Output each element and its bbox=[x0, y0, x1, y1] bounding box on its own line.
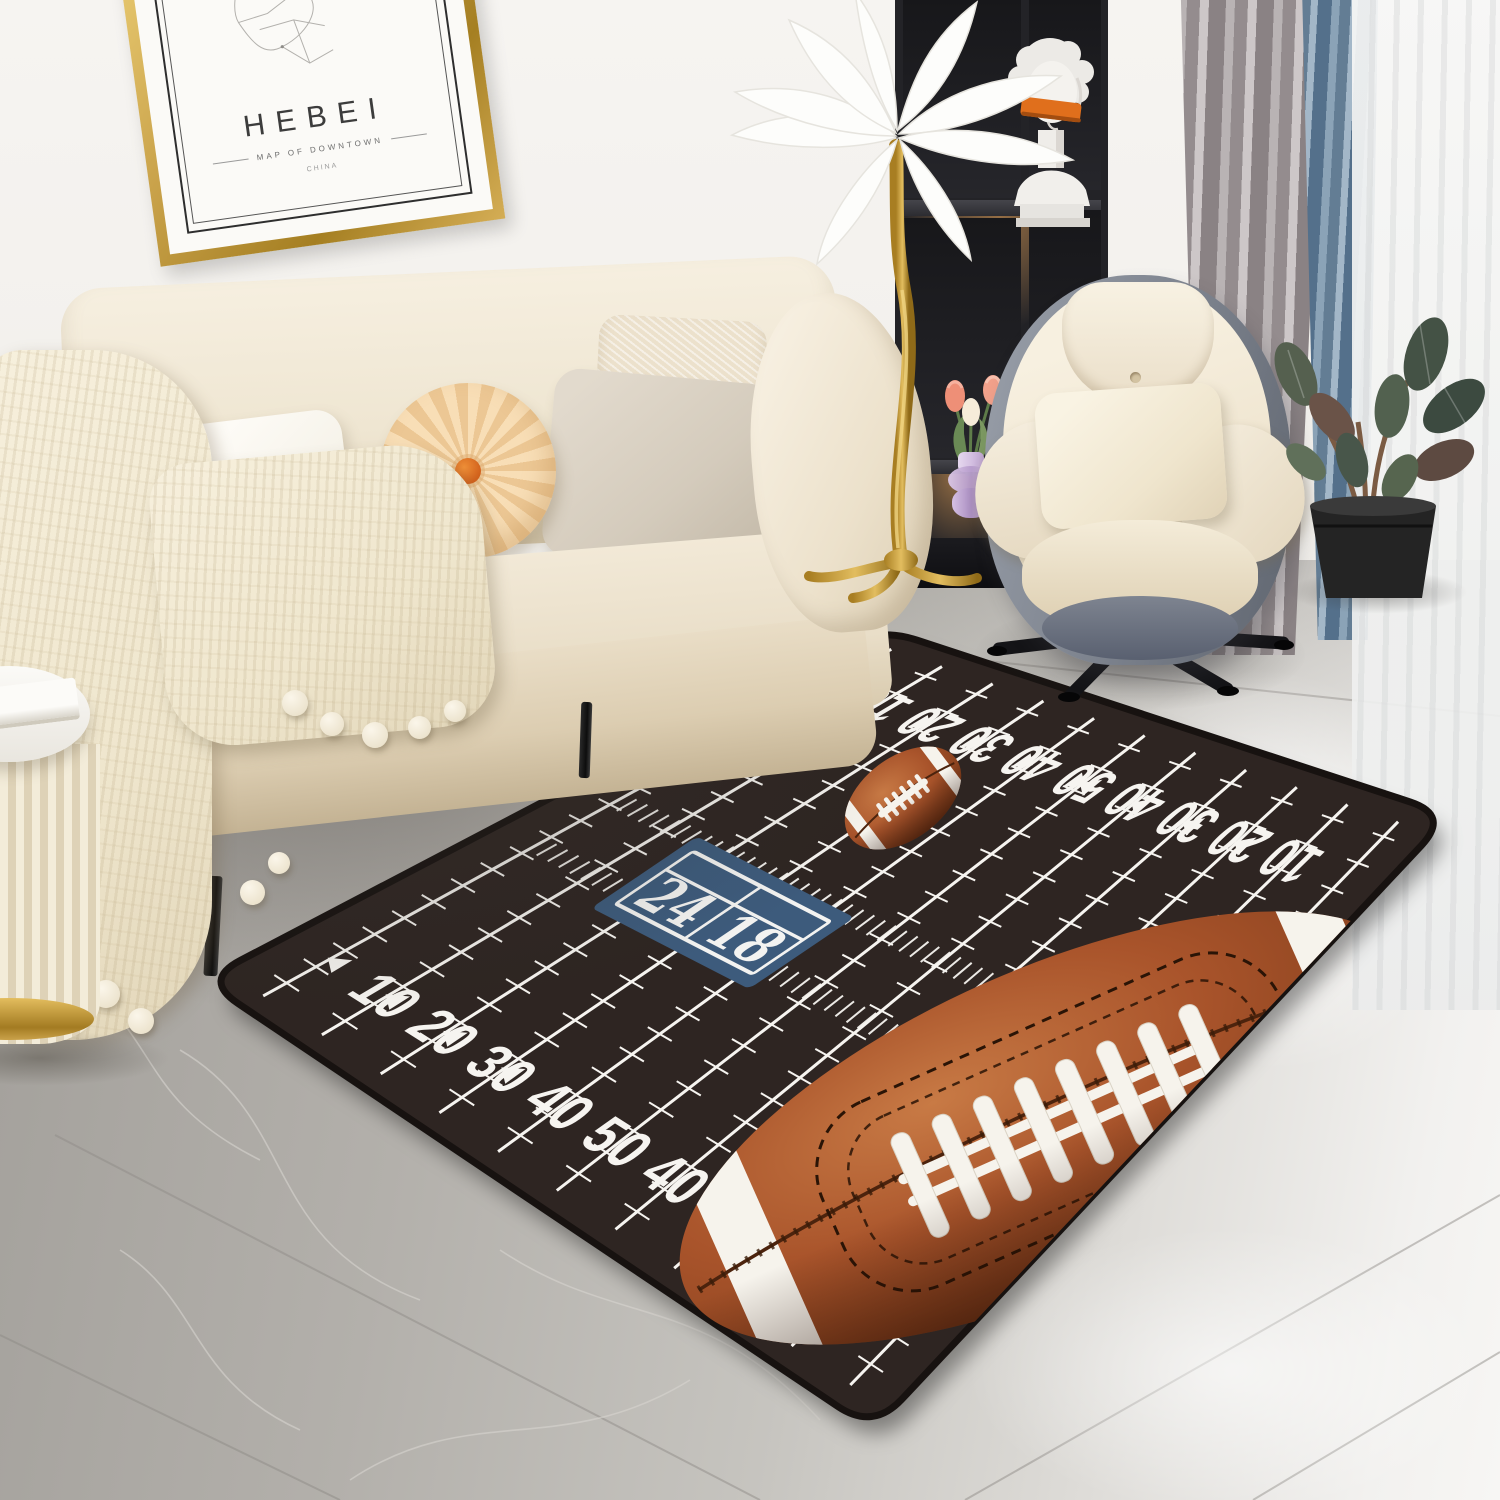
pompom bbox=[282, 690, 308, 716]
pompom bbox=[128, 1008, 154, 1034]
pompom bbox=[362, 722, 388, 748]
frame-matte: HEBEI MAP OF DOWNTOWN CHINA bbox=[131, 0, 493, 254]
rubber-plant bbox=[1240, 310, 1500, 610]
feather-floor-lamp bbox=[705, 0, 1105, 628]
pompom bbox=[444, 700, 466, 722]
pompom bbox=[408, 716, 431, 739]
pompom bbox=[240, 880, 265, 905]
pompom bbox=[320, 712, 344, 736]
pompom bbox=[268, 852, 290, 874]
living-room-scene: HEBEI MAP OF DOWNTOWN CHINA bbox=[0, 0, 1500, 1500]
chair-headrest-button bbox=[1130, 372, 1141, 383]
